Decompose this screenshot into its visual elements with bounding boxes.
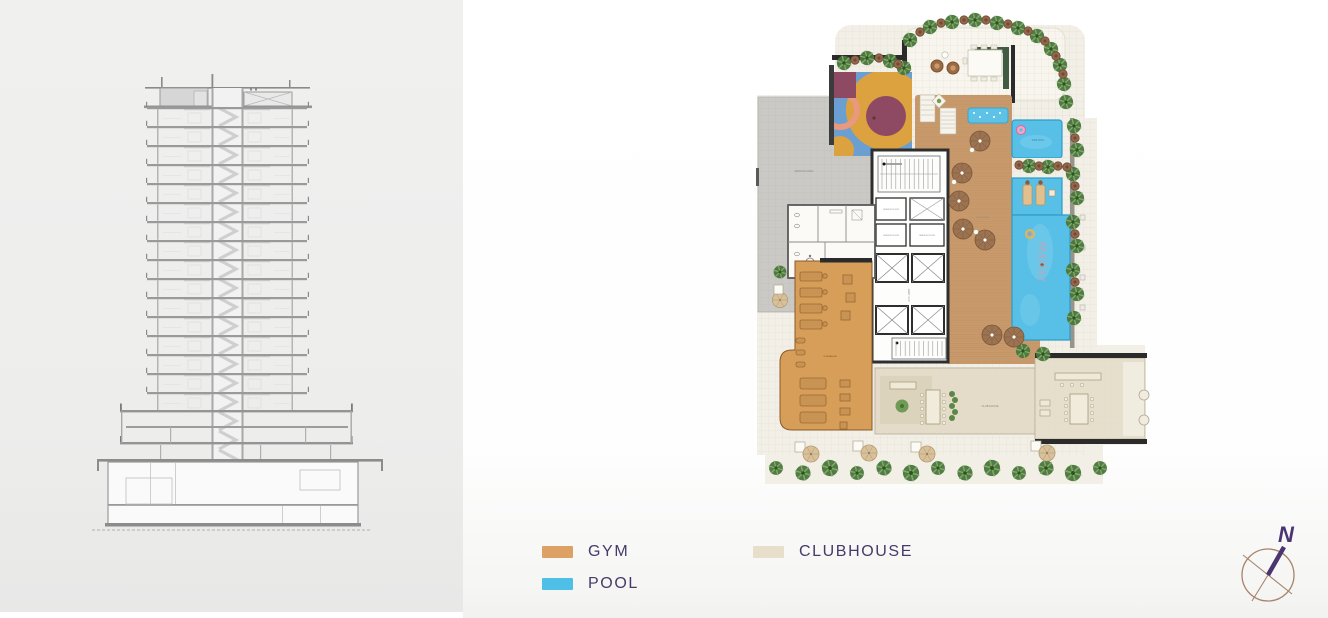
pool-color-swatch xyxy=(542,578,573,590)
service-room-label: SERVICE ROOM xyxy=(883,209,899,211)
gym-color-swatch xyxy=(542,546,573,558)
pool-legend-label: POOL xyxy=(588,575,639,593)
clubhouse-legend-label: CLUBHOUSE xyxy=(799,543,913,561)
pool-lounger-shelf xyxy=(1012,178,1062,215)
service-area-label: SERVICE AREA xyxy=(795,169,814,173)
building-section-drawing xyxy=(0,0,463,618)
pool: KIDS POOL Matiaz xyxy=(1012,118,1097,350)
pool-deck-label: POOL DECK xyxy=(977,217,990,219)
legend-item-clubhouse: CLUBHOUSE xyxy=(753,543,913,561)
compass-n-label: N xyxy=(1278,522,1295,547)
clubhouse-color-swatch xyxy=(753,546,784,558)
main-pool: Matiaz xyxy=(1012,215,1070,340)
gymnasium-label: GYMNASIUM xyxy=(823,355,837,358)
legend-item-gym: GYM xyxy=(542,543,629,561)
dining-table xyxy=(963,45,1002,81)
service-room-label: SERVICE ROOM xyxy=(919,235,935,237)
lift-core: SERVICE ROOM SERVICE ROOM SERVICE ROOM L… xyxy=(872,150,948,362)
pool-watermark: Matiaz xyxy=(1036,242,1048,283)
kids-pool-label: KIDS POOL xyxy=(1032,140,1045,142)
section-core xyxy=(212,88,244,524)
legend-item-pool: POOL xyxy=(542,575,639,593)
clubhouse-wing xyxy=(1035,353,1149,444)
clubhouse-hall: CLUB HOUSE xyxy=(875,368,1035,434)
kids-pool: KIDS POOL xyxy=(1012,120,1062,158)
compass-needle xyxy=(1268,547,1284,575)
club-house-label: CLUB HOUSE xyxy=(982,404,999,408)
lift-lobby-label: LIFT LOBBY xyxy=(908,288,911,302)
compass-tail xyxy=(1252,575,1268,601)
gym-legend-label: GYM xyxy=(588,543,629,561)
amenity-floor-plan: SERVICE AREA xyxy=(740,10,1160,490)
north-compass: N xyxy=(1225,512,1315,617)
service-room-label: SERVICE ROOM xyxy=(883,235,899,237)
